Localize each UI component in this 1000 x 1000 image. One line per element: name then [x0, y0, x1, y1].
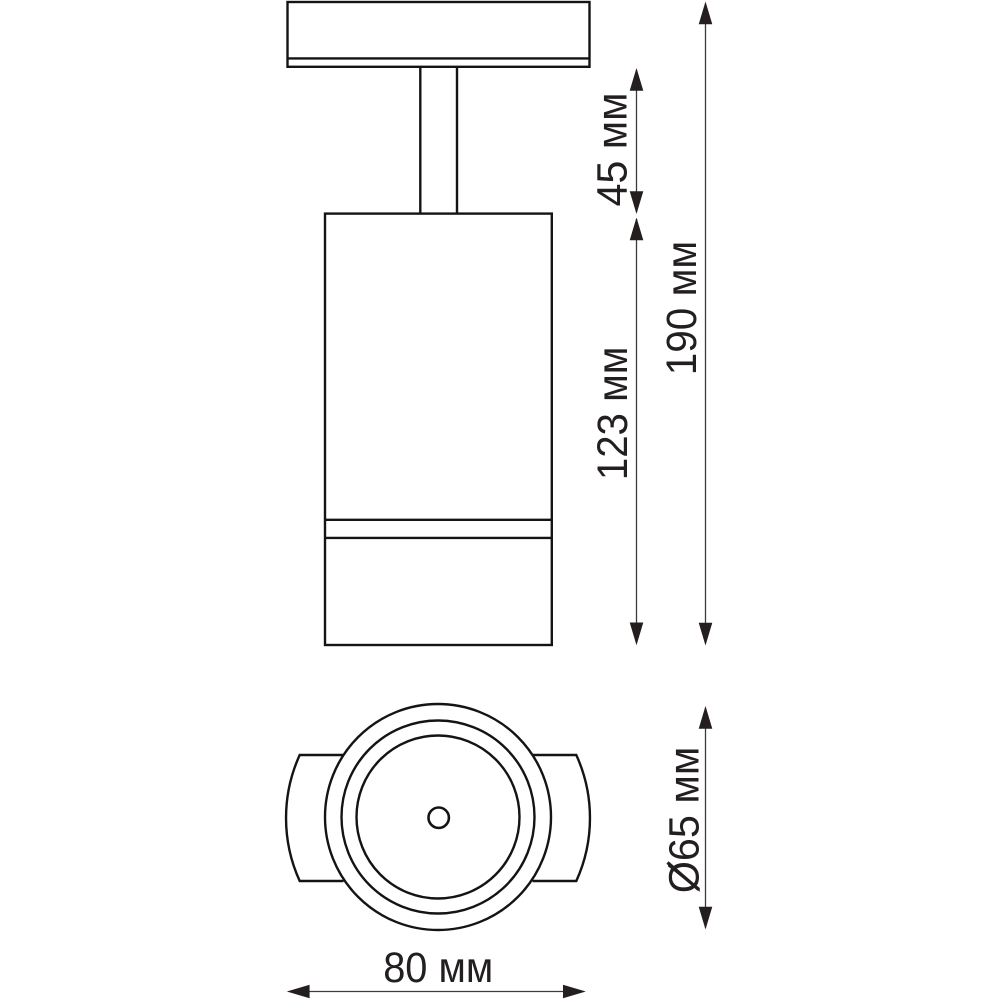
svg-text:80 мм: 80 мм: [383, 945, 493, 992]
svg-text:Ø65 мм: Ø65 мм: [662, 747, 709, 894]
svg-text:190 мм: 190 мм: [659, 241, 706, 376]
svg-text:45 мм: 45 мм: [590, 93, 637, 207]
svg-text:123 мм: 123 мм: [590, 347, 637, 481]
